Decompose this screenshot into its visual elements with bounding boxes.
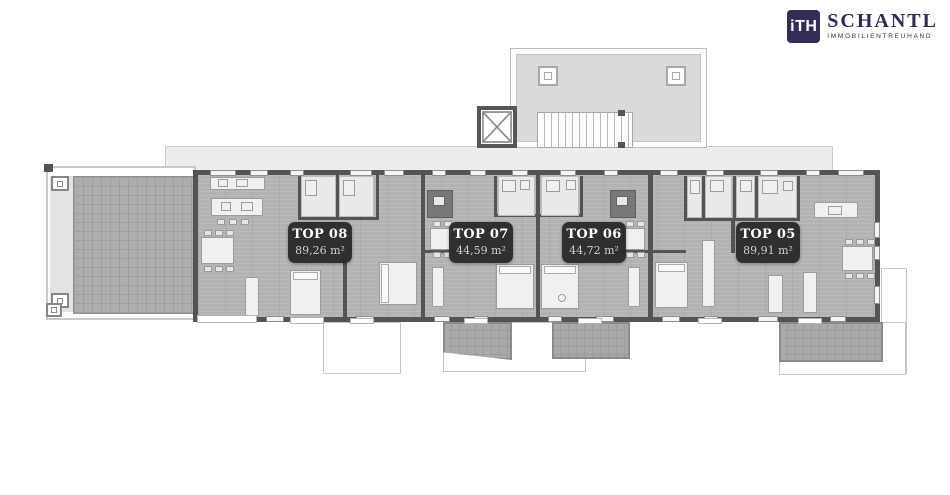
chair <box>215 230 223 236</box>
furniture-block <box>432 267 444 307</box>
washbasin-dot <box>558 294 566 302</box>
door-sill <box>798 318 822 324</box>
furniture-block <box>236 179 248 187</box>
chair <box>226 266 234 272</box>
furniture-block <box>803 272 817 313</box>
furniture-block <box>520 180 530 190</box>
door-sill <box>290 317 324 324</box>
chair <box>626 221 634 227</box>
chair <box>856 273 864 279</box>
window-marker <box>548 316 562 322</box>
wall-segment <box>580 176 583 216</box>
window-marker <box>838 170 864 176</box>
chair <box>856 239 864 245</box>
logo-text: SCHANTL IMMOBILIENTREUHAND <box>827 10 938 40</box>
floorplan-page: TOP 08 89,26 m² TOP 07 44,59 m² TOP 06 4… <box>0 0 950 495</box>
window-marker <box>662 316 680 322</box>
unit-area: 89,91 m² <box>738 244 798 257</box>
terrace-corner-post <box>44 164 53 172</box>
skylight-icon <box>538 66 558 86</box>
unit-area: 44,72 m² <box>564 244 624 257</box>
chair <box>241 219 249 225</box>
logo-ith-mark: iTH <box>787 10 820 43</box>
furniture-block <box>762 180 778 194</box>
balcony-outline <box>323 322 401 374</box>
window-marker <box>806 170 820 176</box>
furniture-block <box>245 277 259 316</box>
unit-label: TOP 08 <box>290 227 350 242</box>
window-marker <box>874 222 880 238</box>
terrace-post <box>51 176 69 191</box>
unit-badge-top-07[interactable]: TOP 07 44,59 m² <box>449 222 513 263</box>
window-marker <box>210 170 236 176</box>
chair <box>637 221 645 227</box>
unit-badge-top-06[interactable]: TOP 06 44,72 m² <box>562 222 626 263</box>
furniture-block <box>783 181 793 191</box>
furniture-block <box>566 180 576 190</box>
furniture-block <box>211 198 263 216</box>
furniture-block <box>241 202 253 211</box>
bed-pillow <box>381 264 389 303</box>
roof-overhang-band <box>165 146 833 172</box>
bed-pillow <box>658 264 685 272</box>
door-sill <box>197 315 257 323</box>
unit-label: TOP 05 <box>738 227 798 242</box>
furniture-block <box>702 240 715 307</box>
terrace-post <box>46 303 62 317</box>
window-marker <box>604 170 618 176</box>
west-terrace-walkway <box>50 176 74 312</box>
skylight-icon <box>666 66 686 86</box>
unit-label: TOP 06 <box>564 227 624 242</box>
unit-area: 44,59 m² <box>451 244 511 257</box>
chair <box>637 252 645 258</box>
furniture-block <box>305 180 317 196</box>
furniture-block <box>502 180 516 192</box>
terrace <box>552 322 630 359</box>
furniture-block <box>842 246 873 271</box>
window-marker <box>432 170 446 176</box>
furniture-block <box>828 206 842 215</box>
furniture-block <box>628 267 640 307</box>
unit-label: TOP 07 <box>451 227 511 242</box>
wall-segment <box>421 175 425 317</box>
window-marker <box>758 316 778 322</box>
unit-area: 89,26 m² <box>290 244 350 257</box>
kitchen-appliance <box>616 196 628 206</box>
door-sill <box>350 318 374 324</box>
wall-segment <box>618 142 625 148</box>
logo-tagline: IMMOBILIENTREUHAND <box>827 33 938 40</box>
window-marker <box>290 170 304 176</box>
furniture-block <box>218 179 228 187</box>
unit-badge-top-08[interactable]: TOP 08 89,26 m² <box>288 222 352 263</box>
furniture-block <box>623 228 645 250</box>
furniture-block <box>768 275 783 313</box>
wall-segment <box>536 175 540 317</box>
window-marker <box>830 316 846 322</box>
chair <box>867 273 875 279</box>
chair <box>433 252 441 258</box>
door-sill <box>464 318 488 324</box>
floor-plan: TOP 08 89,26 m² TOP 07 44,59 m² TOP 06 4… <box>0 0 950 495</box>
logo-company: SCHANTL <box>827 10 938 32</box>
window-marker <box>470 170 486 176</box>
window-marker <box>512 170 528 176</box>
window-marker <box>350 170 372 176</box>
furniture-block <box>343 180 355 196</box>
wall-segment <box>648 175 653 317</box>
wall-segment <box>376 175 379 219</box>
logo: iTH SCHANTL IMMOBILIENTREUHAND <box>787 10 938 43</box>
wall-segment <box>494 176 497 216</box>
logo-mark-text: iTH <box>790 18 817 36</box>
furniture-block <box>740 180 752 192</box>
chair <box>204 230 212 236</box>
wall-segment <box>298 217 379 220</box>
window-marker <box>250 170 268 176</box>
window-marker <box>874 246 880 260</box>
window-marker <box>560 170 576 176</box>
wall-segment <box>650 250 686 253</box>
furniture-block <box>710 180 724 192</box>
west-terrace <box>73 176 194 314</box>
chair <box>226 230 234 236</box>
furniture-block <box>221 202 231 211</box>
window-marker <box>760 170 778 176</box>
chair <box>433 221 441 227</box>
window-marker <box>266 316 284 322</box>
window-marker <box>384 170 404 176</box>
window-marker <box>874 286 880 304</box>
wall-segment <box>343 258 347 317</box>
window-marker <box>660 170 678 176</box>
bed-pillow <box>499 266 531 274</box>
chair <box>217 219 225 225</box>
wall-segment <box>797 176 800 220</box>
kitchen-appliance <box>433 196 445 206</box>
chair <box>626 252 634 258</box>
elevator-x-icon <box>477 106 517 148</box>
terrace <box>779 322 883 362</box>
window-marker <box>706 170 724 176</box>
furniture-block <box>690 180 700 194</box>
wall-segment <box>618 110 625 116</box>
door-sill <box>698 318 722 324</box>
wall-segment <box>684 218 800 221</box>
chair <box>215 266 223 272</box>
window-marker <box>434 316 450 322</box>
chair <box>867 239 875 245</box>
bed-pillow <box>293 272 318 280</box>
furniture-block <box>201 237 234 264</box>
chair <box>204 266 212 272</box>
chair <box>845 273 853 279</box>
wall-segment <box>731 221 735 253</box>
door-sill <box>578 318 602 324</box>
unit-badge-top-05[interactable]: TOP 05 89,91 m² <box>736 222 800 263</box>
furniture-block <box>546 180 560 192</box>
chair <box>229 219 237 225</box>
chair <box>845 239 853 245</box>
bed-pillow <box>544 266 576 274</box>
